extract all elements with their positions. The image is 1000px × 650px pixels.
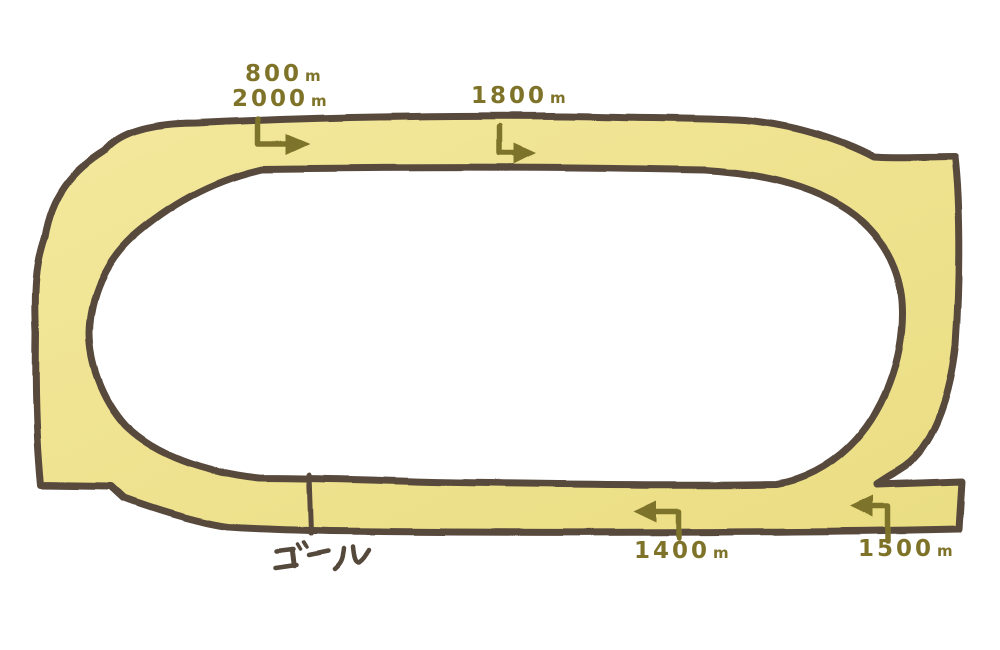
distance-marker-1400: 1400m bbox=[634, 540, 729, 563]
distance-value: 1500 bbox=[858, 536, 934, 562]
track-surface bbox=[35, 116, 962, 532]
distance-marker-1800: 1800m bbox=[471, 85, 566, 108]
distance-unit: m bbox=[937, 542, 953, 560]
distance-value: 1400 bbox=[634, 538, 710, 564]
distance-marker-800: 800m bbox=[245, 63, 321, 86]
distance-unit: m bbox=[550, 89, 566, 107]
distance-value: 800 bbox=[245, 61, 302, 87]
distance-marker-1500: 1500m bbox=[858, 538, 953, 561]
distance-value: 1800 bbox=[471, 83, 547, 109]
goal-line bbox=[309, 475, 311, 533]
distance-marker-2000: 2000m bbox=[232, 88, 327, 111]
racecourse-diagram: 800m 2000m 1800m 1400m 1500m ゴール bbox=[0, 0, 1000, 650]
goal-label: ゴール bbox=[272, 541, 359, 566]
distance-unit: m bbox=[311, 92, 327, 110]
distance-unit: m bbox=[713, 544, 729, 562]
distance-unit: m bbox=[305, 67, 321, 85]
distance-value: 2000 bbox=[232, 86, 308, 112]
